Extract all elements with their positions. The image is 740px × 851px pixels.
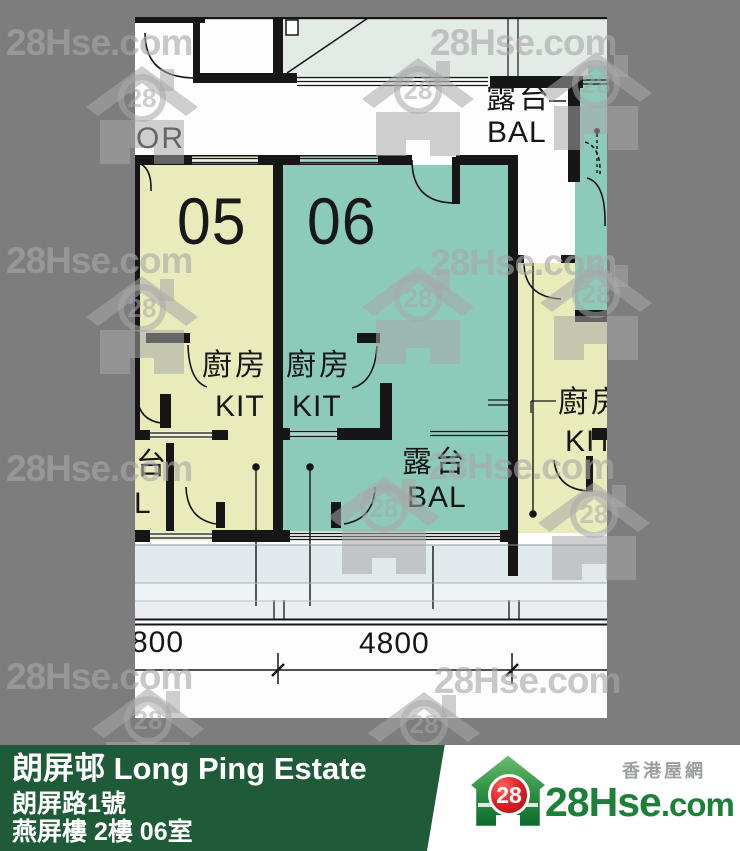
28hse-house-icon: 28 [466,751,550,831]
kitchen-label-en-06: KIT [292,392,342,422]
estate-title: 朗屏邨 Long Ping Estate [12,753,367,784]
kitchen-label-cn-05: 廚房 [202,351,268,381]
balcony-label-cn-top: 露台 [486,84,552,114]
balcony-label-cn-clipped: 露台 [135,450,170,480]
balcony-label-cn-bottom: 露台 [402,448,468,478]
floor-plan-sheet: OR 05 06 廚房 KIT 廚房 KIT 露台 BAL 露台 BAL 露台 … [135,17,607,718]
estate-address: 朗屏路1號 [12,792,126,817]
kitchen-label-en-clipped: KIT [565,427,607,457]
brand-tagline: 香港屋網 [622,757,706,783]
footer-bar: 朗屏邨 Long Ping Estate 朗屏路1號 燕屏樓 2樓 06室 [0,745,740,851]
balcony-label-en-top: BAL [487,118,547,148]
dimension-right: 4800 [359,629,430,659]
brand-suffix: .com [661,786,734,823]
kitchen-label-cn-06: 廚房 [286,351,352,381]
logo-badge-number: 28 [496,782,522,808]
balcony-label-en-bottom: BAL [407,483,467,513]
brand-wordmark: 28Hse.com [545,782,734,823]
screenshot-stage: OR 05 06 廚房 KIT 廚房 KIT 露台 BAL 露台 BAL 露台 … [0,0,740,851]
kitchen-label-cn-clipped: 廚房 [558,388,607,418]
corridor-label: OR [136,124,185,154]
balcony-label-en-clipped: BAL [135,489,152,519]
kitchen-label-en-05: KIT [215,392,265,422]
unit-number-06: 06 [307,188,376,254]
flat-info: 燕屏樓 2樓 06室 [12,820,193,845]
unit-number-05: 05 [177,188,246,254]
28hse-logo: 28 28Hse.com 香港屋網 [462,749,732,847]
brand-name: 28Hse [545,779,661,825]
dimension-left: 800 [135,628,184,658]
